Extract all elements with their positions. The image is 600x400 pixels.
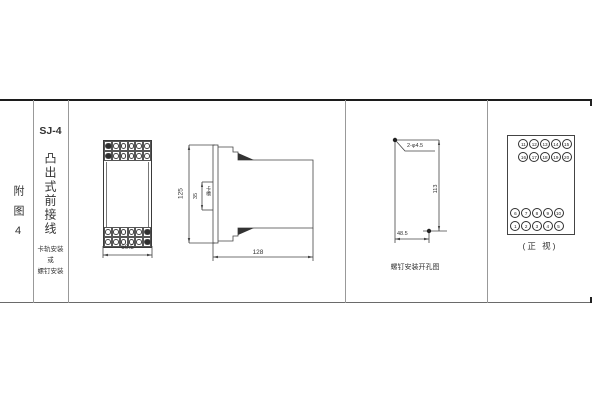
terminal-circle: 3 (532, 221, 542, 231)
terminal-circle: 9 (543, 208, 553, 218)
terminal-circle: 18 (540, 152, 550, 162)
frame-bottom-rule (0, 302, 592, 303)
mount-note-line3: 螺钉安装 (34, 267, 67, 276)
mount-note-line1: 卡轨安装 (34, 245, 67, 254)
drawing-sheet: 附图4 SJ-4 凸出式前接线 卡轨安装 或 螺钉安装 60.5 (0, 0, 600, 400)
model-title: SJ-4 (34, 125, 67, 137)
model-subtitle-vertical: 凸出式前接线 (34, 146, 67, 242)
terminal-circle: 17 (529, 152, 539, 162)
terminal-circle: 1 (510, 221, 520, 231)
frame-divider-2 (68, 100, 69, 303)
terminal-circle: 13 (540, 139, 550, 149)
terminal-circle: 8 (532, 208, 542, 218)
side-view-height-dim: 125 (178, 186, 185, 202)
side-view-slot-dim: 35 (193, 190, 199, 202)
terminal-circle: 4 (543, 221, 553, 231)
terminal-circle: 7 (521, 208, 531, 218)
terminal-block-top (104, 141, 151, 161)
terminal-row-11-15: 11 12 13 14 15 (518, 139, 572, 149)
terminal-circle: 16 (518, 152, 528, 162)
terminal-circle: 2 (521, 221, 531, 231)
frame-top-rule (0, 99, 592, 101)
terminal-circle: 10 (554, 208, 564, 218)
frame-right-tick-top (590, 100, 592, 106)
side-view-drawing (183, 135, 323, 265)
front-view-body-outline (106, 162, 149, 227)
terminal-circle: 20 (562, 152, 572, 162)
terminal-row-6-10: 6 7 8 9 10 (510, 208, 564, 218)
terminal-row-1-5: 1 2 3 4 5 (510, 221, 564, 231)
terminal-row-16-20: 16 17 18 19 20 (518, 152, 572, 162)
frame-divider-4 (487, 100, 488, 303)
front-view-width-dim: 60.5 (103, 244, 152, 251)
terminal-circle: 11 (518, 139, 528, 149)
terminal-view-drawing: 11 12 13 14 15 16 17 18 19 20 6 7 8 9 10… (507, 135, 575, 235)
terminal-circle: 5 (554, 221, 564, 231)
side-view-slot-label: 卡槽 (205, 186, 212, 196)
drill-caption: 螺钉安装开孔图 (375, 262, 455, 272)
mount-note-line2: 或 (34, 256, 67, 265)
frame-right-tick-bottom (590, 297, 592, 303)
drill-width-dim: 48.5 (397, 231, 408, 237)
terminal-circle: 19 (551, 152, 561, 162)
terminal-circle: 6 (510, 208, 520, 218)
side-view-depth-dim: 128 (233, 249, 283, 256)
drill-holes-label: 2-φ4.5 (407, 143, 423, 149)
figure-row-label: 附图4 (6, 176, 30, 254)
terminal-view-caption: (正 视) (495, 240, 585, 252)
terminal-circle: 14 (551, 139, 561, 149)
terminal-circle: 12 (529, 139, 539, 149)
drill-height-dim: 113 (433, 182, 439, 196)
terminal-circle: 15 (562, 139, 572, 149)
frame-divider-3 (345, 100, 346, 303)
